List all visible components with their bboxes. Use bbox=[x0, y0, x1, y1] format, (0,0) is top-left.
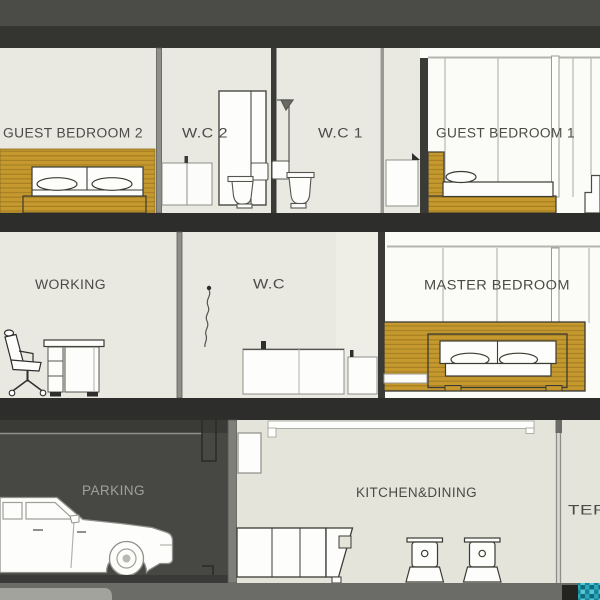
bed-base bbox=[23, 196, 146, 213]
side-cabinet bbox=[348, 357, 377, 394]
window-mullion bbox=[381, 48, 385, 213]
caster bbox=[40, 390, 46, 396]
desk-top bbox=[44, 340, 104, 347]
partition-mullion bbox=[177, 232, 182, 398]
room-label-master-bedroom: MASTER BEDROOM bbox=[424, 278, 570, 293]
room-label-kitchen-dining: KITCHEN&DINING bbox=[356, 485, 477, 500]
chair-dot bbox=[422, 550, 428, 556]
room-label-wc-2: W.C 2 bbox=[182, 126, 228, 141]
platform-double-bed bbox=[384, 322, 585, 391]
dining-chair bbox=[406, 538, 444, 582]
counter-cabinet bbox=[243, 349, 344, 394]
chair-legs bbox=[406, 567, 444, 582]
bed-sill bbox=[384, 374, 427, 383]
roof-slab bbox=[0, 26, 600, 48]
counter-foot bbox=[332, 577, 341, 583]
pillow bbox=[92, 178, 132, 191]
wc-party-wall bbox=[271, 48, 277, 213]
shower-head bbox=[207, 286, 211, 290]
driveway-ramp bbox=[0, 588, 112, 600]
pool-edge-dark bbox=[562, 585, 578, 600]
cabinet-run bbox=[237, 528, 326, 577]
bed-foot bbox=[546, 386, 562, 392]
faucet-icon bbox=[261, 341, 266, 349]
gb1-wall bbox=[420, 58, 428, 213]
mattress bbox=[443, 182, 553, 197]
chair-legs bbox=[464, 567, 502, 582]
cabinet-knob bbox=[185, 156, 189, 163]
garage-floor-strip bbox=[0, 575, 237, 583]
knob bbox=[350, 350, 354, 357]
pillow bbox=[446, 172, 476, 183]
caster bbox=[9, 390, 15, 396]
counter-notch bbox=[339, 536, 351, 548]
drawer-unit bbox=[48, 347, 63, 392]
side-mirror bbox=[70, 515, 79, 523]
room-label-wc-1: W.C 1 bbox=[318, 126, 363, 141]
bed-base bbox=[428, 196, 556, 213]
pool-edge-tiles bbox=[578, 583, 600, 600]
desk bbox=[44, 340, 104, 397]
pillow bbox=[37, 178, 77, 191]
floor-slab-2 bbox=[0, 213, 600, 232]
mattress bbox=[446, 364, 552, 377]
chair-seat bbox=[11, 360, 41, 371]
service-window bbox=[238, 433, 261, 473]
wc-pillar bbox=[336, 232, 378, 358]
parapet-band bbox=[0, 0, 600, 26]
building-section: GUEST BEDROOM 2 W.C 2 W.C 1 GUEST BEDROO… bbox=[0, 0, 600, 600]
room-label-parking: PARKING bbox=[82, 483, 145, 498]
bed-foot bbox=[445, 386, 461, 392]
room-label-working: WORKING bbox=[35, 277, 106, 292]
room-label-guest-bedroom-1: GUEST BEDROOM 1 bbox=[436, 126, 575, 141]
section-drawing: GUEST BEDROOM 2 W.C 2 W.C 1 GUEST BEDROO… bbox=[0, 0, 600, 600]
vanity-cabinet bbox=[386, 160, 418, 206]
floor-slab-1 bbox=[0, 398, 600, 420]
base-cabinets bbox=[237, 528, 353, 583]
room-label-terrace: TERRACE bbox=[568, 503, 600, 518]
glass-partition bbox=[556, 420, 563, 583]
garage-wall-column bbox=[228, 420, 237, 583]
room-label-wc: W.C bbox=[253, 277, 285, 292]
room-label-guest-bedroom-2: GUEST BEDROOM 2 bbox=[3, 126, 143, 141]
partition-mullion bbox=[157, 48, 162, 213]
chair-dot bbox=[479, 550, 485, 556]
double-bed-guest-2 bbox=[0, 149, 155, 213]
dining-chair bbox=[464, 538, 502, 582]
